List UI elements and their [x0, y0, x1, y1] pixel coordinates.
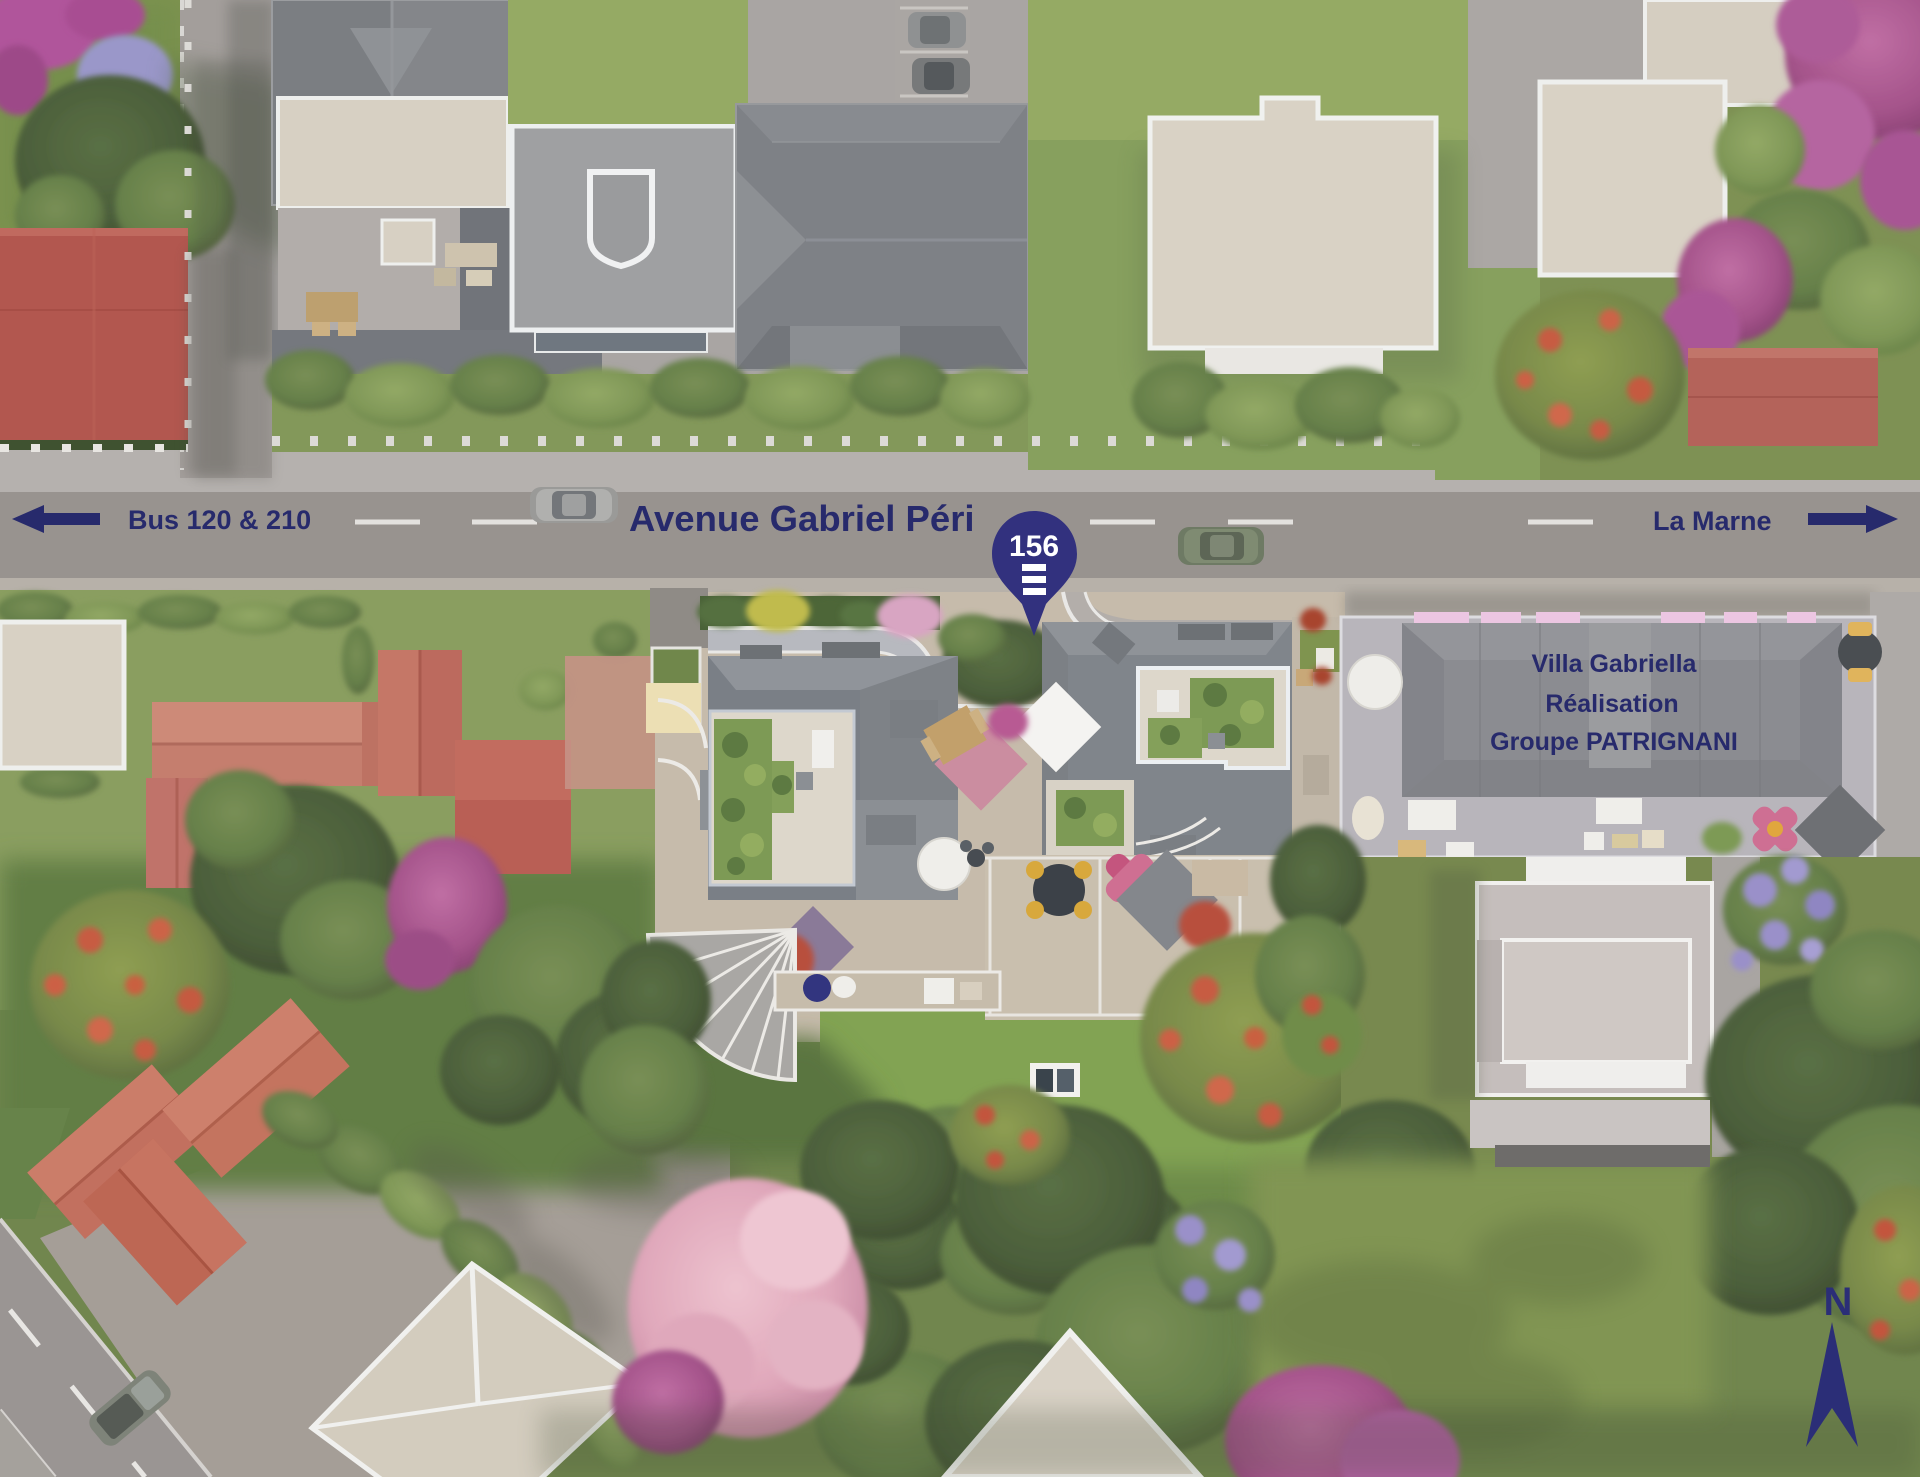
- svg-text:Groupe PATRIGNANI: Groupe PATRIGNANI: [1490, 728, 1738, 756]
- svg-text:Réalisation: Réalisation: [1545, 690, 1678, 718]
- svg-text:Villa Gabriella: Villa Gabriella: [1532, 650, 1698, 678]
- svg-text:Bus 120 & 210: Bus 120 & 210: [128, 505, 311, 535]
- svg-text:Avenue Gabriel Péri: Avenue Gabriel Péri: [629, 498, 975, 539]
- svg-text:156: 156: [1009, 530, 1059, 563]
- svg-text:La Marne: La Marne: [1653, 506, 1772, 536]
- svg-text:N: N: [1824, 1280, 1853, 1324]
